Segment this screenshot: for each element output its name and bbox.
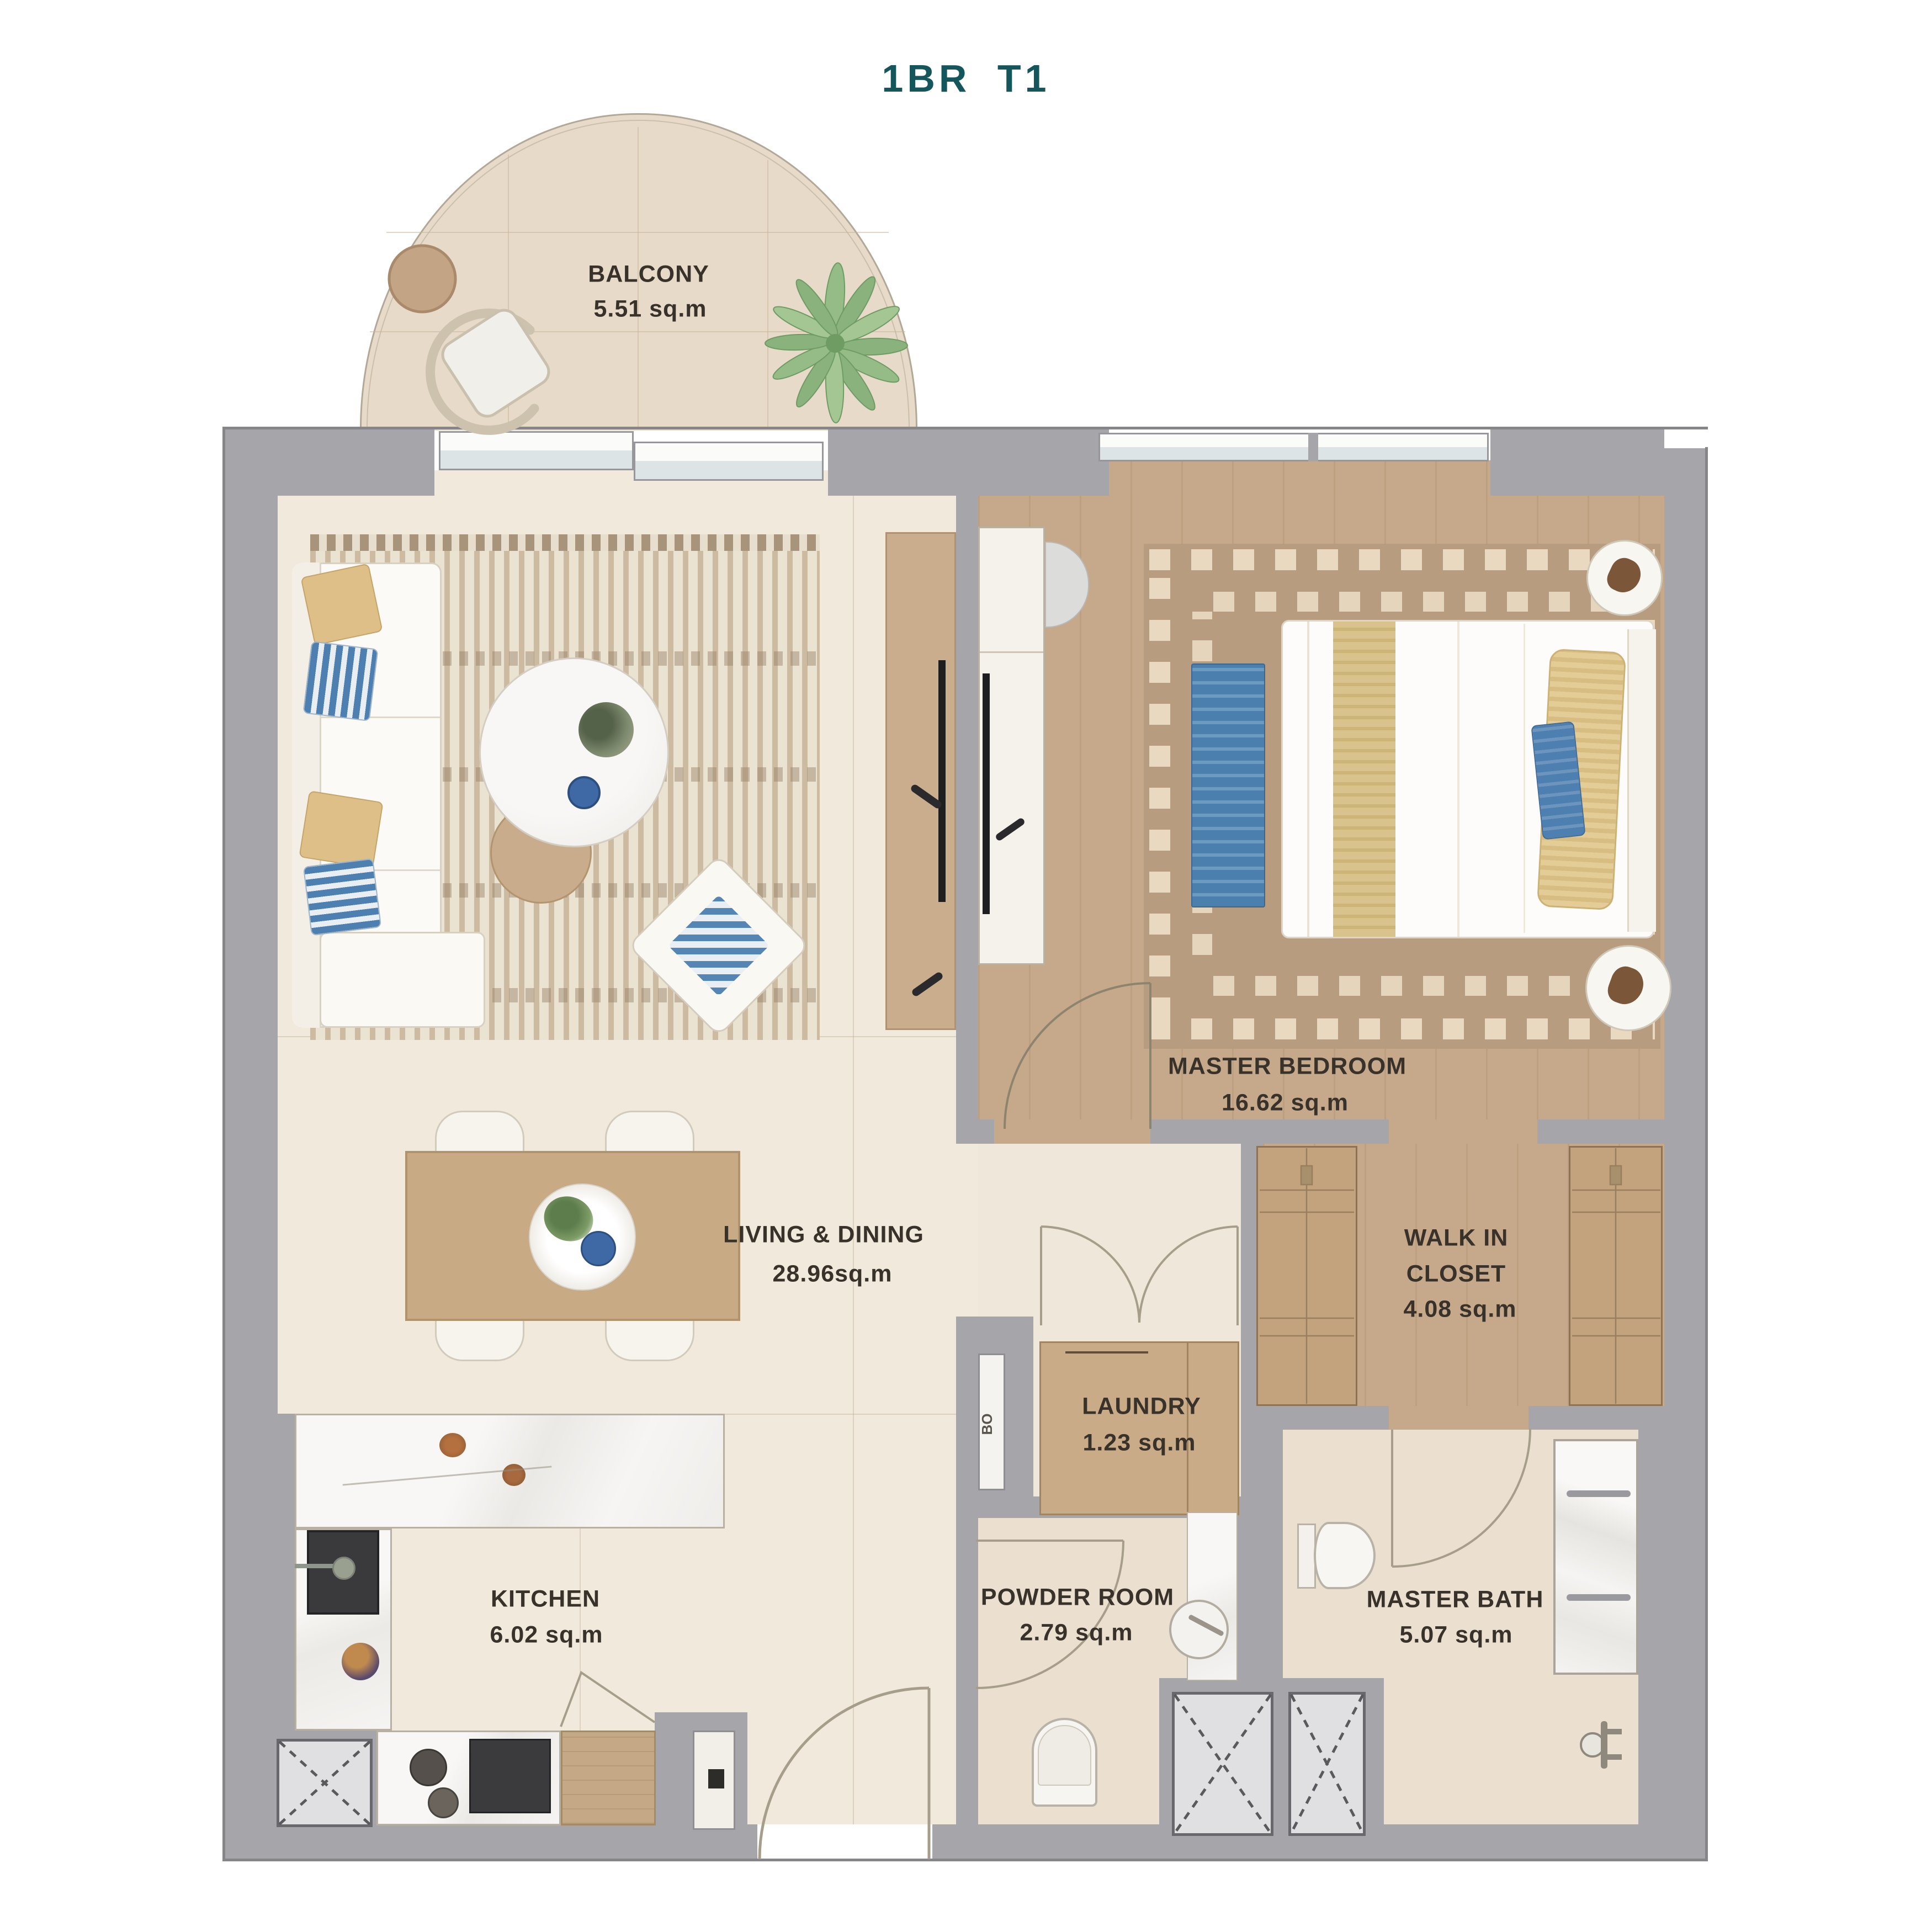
svg-text:BO: BO [979, 1414, 995, 1435]
